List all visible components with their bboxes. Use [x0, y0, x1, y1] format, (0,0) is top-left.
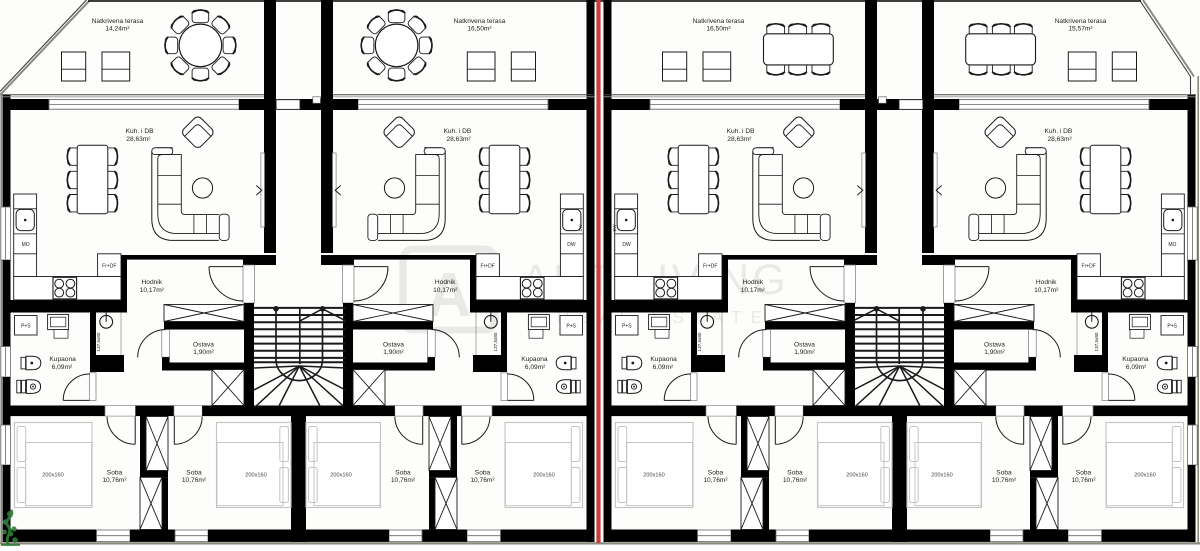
svg-text:10,17m²: 10,17m²: [1034, 287, 1059, 294]
svg-text:10,76m²: 10,76m²: [182, 477, 207, 484]
svg-text:Hodnik: Hodnik: [435, 279, 456, 286]
svg-text:Hodnik: Hodnik: [743, 279, 764, 286]
svg-text:Natkrivena terasa: Natkrivena terasa: [693, 18, 745, 25]
svg-text:200x160: 200x160: [42, 472, 63, 478]
svg-text:Kuh. i DB: Kuh. i DB: [727, 128, 755, 135]
svg-text:6,09m²: 6,09m²: [525, 364, 546, 371]
svg-text:10,17m²: 10,17m²: [741, 287, 766, 294]
svg-text:6,09m²: 6,09m²: [1126, 364, 1147, 371]
svg-text:10,76m²: 10,76m²: [102, 477, 127, 484]
svg-text:MO: MO: [22, 242, 30, 248]
svg-text:Kupaona: Kupaona: [650, 356, 677, 363]
svg-text:28,63m²: 28,63m²: [727, 136, 752, 143]
svg-text:16,50m²: 16,50m²: [467, 26, 492, 33]
svg-text:P+S: P+S: [1167, 323, 1177, 329]
svg-text:Hodnik: Hodnik: [142, 279, 163, 286]
svg-text:6,09m²: 6,09m²: [653, 364, 674, 371]
svg-text:28,63m²: 28,63m²: [1047, 136, 1072, 143]
svg-text:200x160: 200x160: [330, 472, 351, 478]
svg-text:200x160: 200x160: [931, 472, 952, 478]
svg-text:10,76m²: 10,76m²: [391, 477, 416, 484]
svg-text:P+S: P+S: [566, 323, 576, 329]
svg-text:137,5x80: 137,5x80: [493, 332, 498, 351]
svg-text:137,5x80: 137,5x80: [1094, 332, 1099, 351]
svg-text:Ostava: Ostava: [794, 342, 815, 349]
svg-text:P+S: P+S: [622, 323, 632, 329]
svg-text:Soba: Soba: [186, 470, 202, 477]
svg-text:Soba: Soba: [107, 470, 123, 477]
svg-text:6,09m²: 6,09m²: [52, 364, 73, 371]
svg-text:DW: DW: [622, 242, 631, 248]
svg-text:Ostava: Ostava: [383, 342, 404, 349]
svg-text:Hodnik: Hodnik: [1036, 279, 1057, 286]
svg-text:10,76m²: 10,76m²: [703, 477, 728, 484]
svg-text:Kuh. i DB: Kuh. i DB: [443, 128, 471, 135]
svg-text:200x160: 200x160: [245, 472, 266, 478]
svg-text:200x160: 200x160: [846, 472, 867, 478]
svg-text:Natkrivena terasa: Natkrivena terasa: [454, 18, 506, 25]
svg-text:10,17m²: 10,17m²: [140, 287, 165, 294]
svg-text:DW: DW: [567, 242, 576, 248]
svg-text:Kupaona: Kupaona: [49, 356, 76, 363]
svg-text:MO: MO: [1168, 242, 1176, 248]
svg-text:Soba: Soba: [787, 470, 803, 477]
svg-text:1,90m²: 1,90m²: [794, 349, 815, 356]
svg-text:200x160: 200x160: [1134, 472, 1155, 478]
svg-text:10,76m²: 10,76m²: [783, 477, 808, 484]
svg-text:10,17m²: 10,17m²: [433, 287, 458, 294]
svg-text:14,24m²: 14,24m²: [105, 26, 130, 33]
svg-text:Soba: Soba: [708, 470, 724, 477]
svg-text:Kupaona: Kupaona: [1122, 356, 1149, 363]
svg-text:Fr+DF: Fr+DF: [481, 264, 495, 270]
svg-text:15,57m²: 15,57m²: [1068, 26, 1093, 33]
svg-text:28,63m²: 28,63m²: [446, 136, 471, 143]
svg-text:Soba: Soba: [996, 470, 1012, 477]
svg-text:Ostava: Ostava: [193, 342, 214, 349]
svg-text:1,90m²: 1,90m²: [984, 349, 1005, 356]
svg-text:1,90m²: 1,90m²: [193, 349, 214, 356]
svg-text:Soba: Soba: [475, 470, 491, 477]
svg-text:10,76m²: 10,76m²: [470, 477, 495, 484]
svg-text:DW: DW: [578, 224, 583, 231]
svg-text:1,90m²: 1,90m²: [383, 349, 404, 356]
svg-text:Natkrivena terasa: Natkrivena terasa: [92, 18, 144, 25]
svg-text:200x160: 200x160: [533, 472, 554, 478]
svg-text:Ostava: Ostava: [984, 342, 1005, 349]
svg-text:Kupaona: Kupaona: [521, 356, 548, 363]
svg-text:16,50m²: 16,50m²: [706, 26, 731, 33]
svg-text:Soba: Soba: [1076, 470, 1092, 477]
svg-text:Fr+DF: Fr+DF: [102, 264, 116, 270]
svg-text:10,76m²: 10,76m²: [992, 477, 1017, 484]
svg-text:28,63m²: 28,63m²: [126, 136, 151, 143]
svg-text:Kuh. i DB: Kuh. i DB: [126, 128, 154, 135]
svg-text:Fr+DF: Fr+DF: [703, 264, 717, 270]
svg-text:Fr+DF: Fr+DF: [1082, 264, 1096, 270]
svg-text:DW: DW: [612, 224, 617, 231]
svg-text:Natkrivena terasa: Natkrivena terasa: [1055, 18, 1107, 25]
svg-text:Soba: Soba: [395, 470, 411, 477]
svg-text:200x160: 200x160: [643, 472, 664, 478]
svg-text:137,5x80: 137,5x80: [697, 332, 702, 351]
svg-text:P+S: P+S: [21, 323, 31, 329]
svg-text:Kuh. i DB: Kuh. i DB: [1044, 128, 1072, 135]
svg-text:137,5x80: 137,5x80: [96, 332, 101, 351]
svg-text:10,76m²: 10,76m²: [1071, 477, 1096, 484]
